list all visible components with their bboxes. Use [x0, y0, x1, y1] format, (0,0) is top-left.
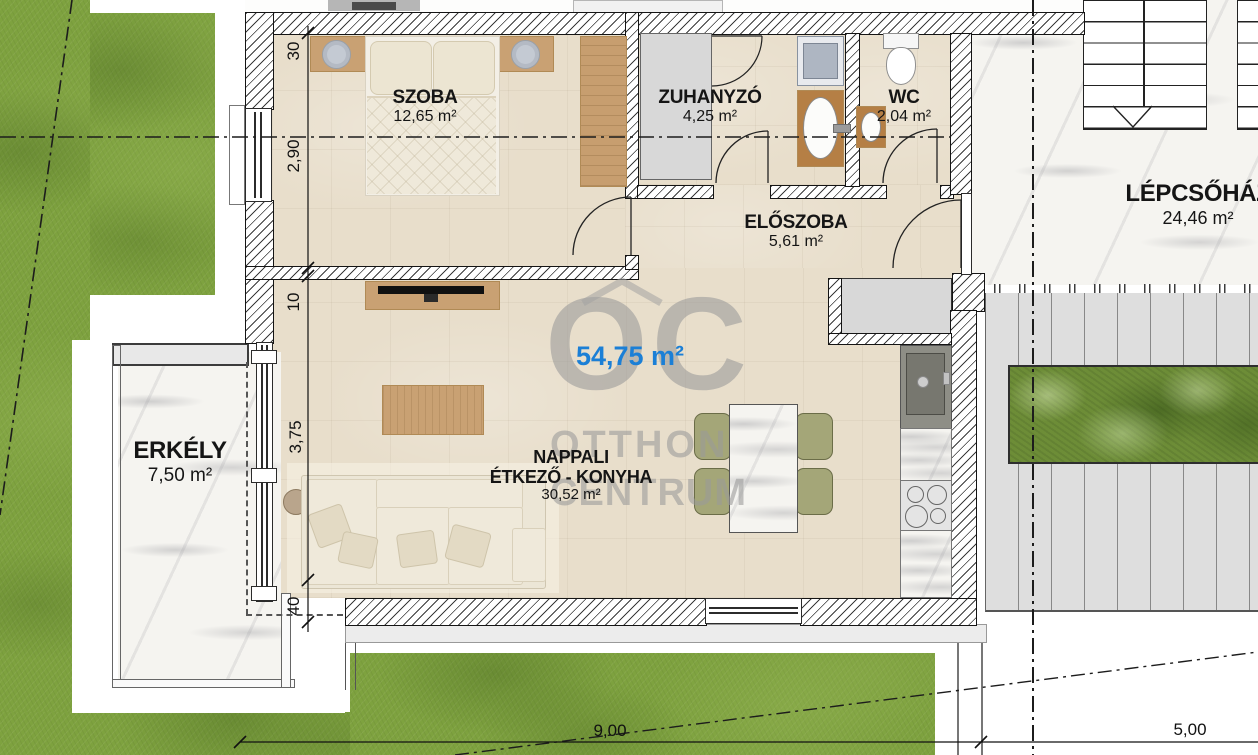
room-area-wc: 2,04 m²	[844, 108, 964, 126]
glass-wall-mullion-bottom	[251, 586, 277, 601]
lamp-left	[322, 40, 351, 69]
tv	[378, 286, 484, 294]
kitchen-counter-upper	[900, 428, 952, 482]
room-area-lepcsohaz: 24,46 m²	[1078, 208, 1258, 228]
toilet-bowl	[886, 47, 916, 85]
bottom-wall-right	[800, 598, 977, 626]
terrace-edge-line-right	[981, 641, 983, 755]
szoba-window-sill	[229, 105, 245, 205]
party-wall-top	[245, 12, 1085, 35]
nappali-bottom-window	[705, 598, 802, 624]
tv-stand	[424, 294, 438, 302]
coffee-table	[382, 385, 484, 435]
sofa-pillow-3	[396, 530, 438, 569]
dining-chair-4	[795, 468, 833, 515]
bath-wall-segment-b	[770, 185, 887, 199]
kitchen-counter-lower	[900, 530, 952, 598]
facade-corner-stub	[345, 641, 356, 690]
bath-wall-segment-a	[637, 185, 714, 199]
dim-bottom-500: 5,00	[1140, 720, 1240, 740]
right-wall-lower	[950, 310, 977, 600]
room-name-wc: WC	[844, 87, 964, 108]
room-label-szoba: SZOBA 12,65 m²	[335, 87, 515, 126]
dining-chair-3	[795, 413, 833, 460]
entry-closet	[840, 278, 952, 335]
room-name-lepcsohaz: LÉPCSŐHÁZ	[1078, 181, 1258, 208]
stairs-flight-2	[1237, 0, 1258, 130]
room-name-nappali-line2: ÉTKEZŐ - KONYHA	[476, 467, 666, 487]
stairs-center-divider	[1143, 0, 1145, 107]
room-label-lepcsohaz: LÉPCSŐHÁZ 24,46 m²	[1078, 181, 1258, 228]
kitchen-sink-unit	[900, 345, 952, 430]
stairs-flight-1	[1083, 0, 1207, 130]
room-label-nappali: NAPPALI ÉTKEZŐ - KONYHA 30,52 m²	[476, 447, 666, 504]
glass-wall-mullion-top	[251, 350, 277, 364]
room-name-szoba: SZOBA	[335, 87, 515, 108]
room-label-zuhanyzo: ZUHANYZÓ 4,25 m²	[620, 87, 800, 126]
balcony-parapet-top	[112, 343, 249, 366]
washing-machine	[797, 36, 844, 86]
hedge-planter	[1008, 365, 1258, 464]
closet-bottom-wall	[828, 333, 952, 345]
room-label-eloszoba: ELŐSZOBA 5,61 m²	[706, 212, 886, 251]
room-area-nappali: 30,52 m²	[476, 487, 666, 504]
grass-top-left	[90, 13, 215, 295]
balcony-railing-left	[112, 345, 121, 687]
dim-bottom-900: 9,00	[560, 721, 660, 741]
deck-railing-posts	[985, 284, 1258, 293]
room-name-zuhanyzo: ZUHANYZÓ	[620, 87, 800, 108]
room-area-szoba: 12,65 m²	[335, 108, 515, 126]
room-name-nappali-line1: NAPPALI	[476, 447, 666, 467]
dim-left-375: 3,75	[286, 407, 306, 467]
entry-pier-wall	[952, 273, 985, 312]
exterior-sill-band	[345, 624, 987, 643]
total-area-label: 54,75 m²	[530, 341, 730, 371]
bottom-wall-left	[345, 598, 707, 626]
sofa-ottoman	[512, 528, 546, 582]
dim-left-40: 40	[284, 586, 304, 626]
entry-door-frame	[961, 193, 972, 275]
szoba-window	[245, 108, 272, 202]
room-name-eloszoba: ELŐSZOBA	[706, 212, 886, 233]
dim-left-290: 2,90	[284, 126, 304, 186]
dim-left-30: 30	[284, 31, 304, 71]
terrace-edge-line-left	[957, 641, 959, 755]
room-label-erkely: ERKÉLY 7,50 m²	[100, 438, 260, 486]
room-area-eloszoba: 5,61 m²	[706, 233, 886, 251]
floor-plan: OC OTTHON CENTRUM SZOBA 12,65 m² ZUHANYZ…	[0, 0, 1258, 755]
dim-left-10: 10	[284, 282, 304, 322]
kitchen-stove	[900, 480, 952, 532]
lamp-right	[511, 40, 540, 69]
room-label-wc: WC 2,04 m²	[844, 87, 964, 126]
neighbour-stove	[352, 2, 396, 10]
roof-overhang-dashed-v	[246, 362, 248, 615]
room-name-erkely: ERKÉLY	[100, 438, 260, 465]
left-wall-upper	[245, 12, 274, 110]
balcony-railing-bottom	[112, 679, 295, 688]
szoba-right-wall-stub	[625, 255, 639, 270]
room-area-erkely: 7,50 m²	[100, 465, 260, 486]
room-area-zuhanyzo: 4,25 m²	[620, 108, 800, 126]
